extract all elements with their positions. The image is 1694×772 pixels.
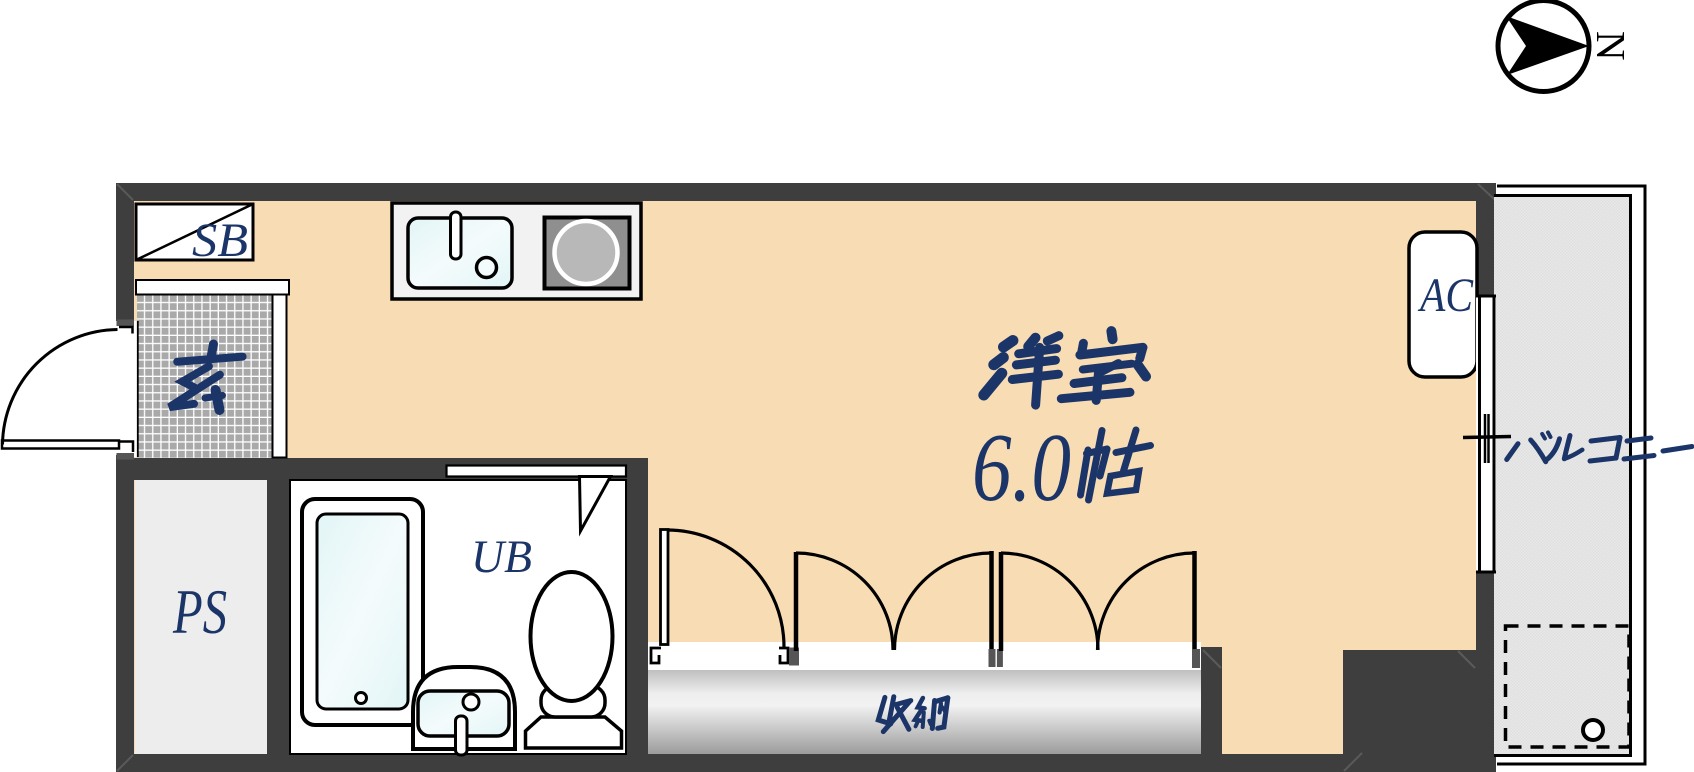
svg-text:UB: UB — [471, 531, 532, 583]
svg-text:SB: SB — [192, 214, 248, 267]
svg-text:6.0: 6.0 — [972, 414, 1071, 521]
svg-text:AC: AC — [1417, 269, 1473, 322]
svg-text:N: N — [1588, 31, 1634, 61]
svg-text:PS: PS — [172, 577, 227, 647]
